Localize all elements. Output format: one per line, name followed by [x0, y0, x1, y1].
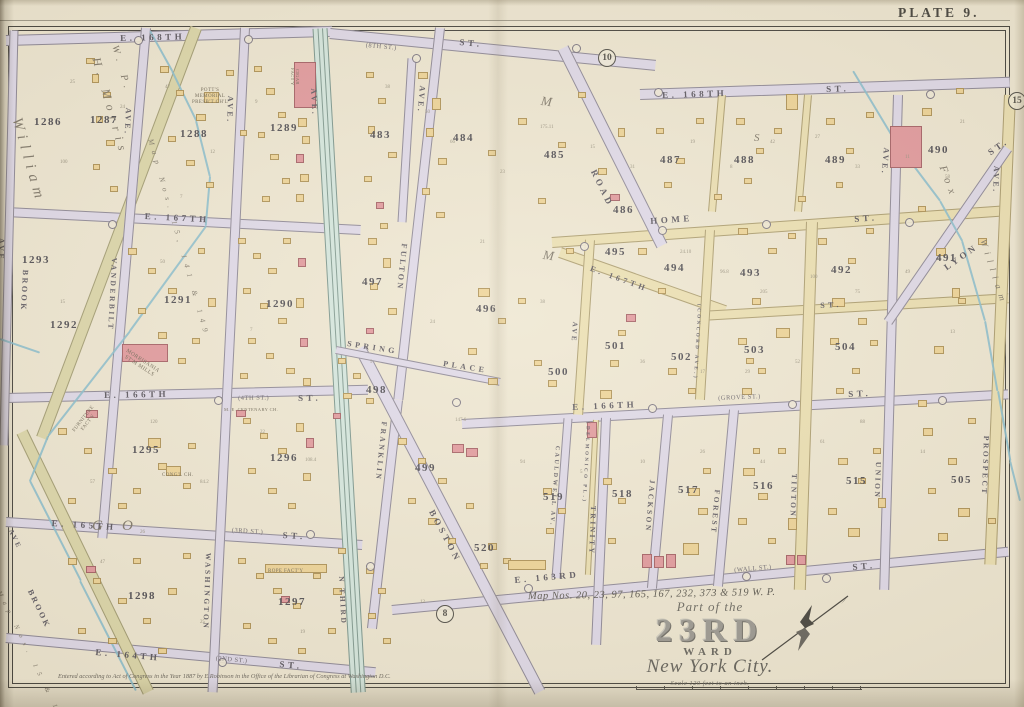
frame-building [610, 360, 619, 367]
frame-building [388, 152, 397, 158]
corner-marker [658, 226, 667, 235]
frame-building [178, 358, 186, 364]
brick-building [452, 444, 464, 453]
lot-number: 57 [90, 480, 95, 485]
lot-number: 42 [770, 140, 775, 145]
block-number: 1287 [90, 114, 118, 126]
street-label: ST. [854, 212, 878, 224]
frame-building [866, 228, 874, 234]
lot-number: 38 [540, 300, 545, 305]
avenue-label: PROSPECT [979, 436, 990, 496]
lot-number: 15 [60, 300, 65, 305]
frame-building [683, 543, 699, 555]
block-number: 495 [605, 246, 626, 258]
stream-segment [1009, 461, 1021, 501]
frame-building [436, 212, 445, 218]
frame-building [248, 338, 256, 344]
frame-building [578, 92, 586, 98]
frame-building [240, 130, 247, 136]
frame-building [368, 238, 377, 245]
lot-number: 108.4 [305, 458, 316, 463]
estate-label: O [122, 518, 139, 535]
lot-number: 36 [640, 360, 645, 365]
frame-building [638, 248, 647, 255]
brick-building [300, 338, 308, 347]
brick-building [626, 314, 636, 322]
frame-building [68, 498, 76, 504]
frame-building [378, 588, 386, 594]
lot-number: 52 [795, 360, 800, 365]
frame-building [778, 448, 786, 454]
block-number: 489 [825, 154, 846, 166]
avenue-label: UNION [872, 462, 882, 500]
lot-number: 47 [165, 85, 170, 90]
block-number: 498 [366, 384, 387, 396]
frame-building [948, 458, 957, 465]
corner-marker [108, 220, 117, 229]
frame-building [183, 483, 191, 489]
frame-building [243, 623, 251, 629]
street-label: ST. [852, 560, 876, 572]
brick-building [642, 554, 652, 568]
frame-building [918, 206, 926, 212]
frame-building [286, 368, 295, 374]
frame-building [703, 468, 711, 474]
frame-building [300, 174, 309, 182]
frame-building [273, 588, 282, 594]
frame-building [383, 638, 391, 644]
block-number: 516 [753, 480, 774, 492]
block-number: 1295 [132, 444, 160, 456]
corner-marker [572, 44, 581, 53]
frame-building [254, 66, 262, 72]
frame-building [480, 563, 488, 569]
frame-building [836, 182, 843, 188]
lot-number: 29 [745, 370, 750, 375]
street-label: ST. [820, 300, 842, 310]
brick-building [86, 566, 96, 573]
frame-building [378, 98, 386, 104]
street-label: E. 168TH [662, 88, 727, 100]
frame-building [688, 388, 696, 394]
lot-number: 22 [260, 430, 265, 435]
frame-building [256, 573, 264, 579]
frame-building [110, 186, 118, 192]
lot-number: 96.8 [720, 270, 729, 275]
lot-number: 147.6 [455, 418, 466, 423]
avenue-label: AVE. [309, 88, 320, 116]
frame-building [774, 128, 782, 134]
block-number: 496 [476, 303, 497, 315]
frame-building [922, 108, 932, 116]
lot-number: 13 [950, 330, 955, 335]
frame-building [518, 298, 526, 304]
lot-number: 19 [300, 630, 305, 635]
lot-number: 50 [160, 260, 165, 265]
lot-number: 9 [255, 100, 258, 105]
frame-building [768, 248, 777, 254]
avenue-label: AVE. [991, 166, 1001, 194]
lot-number: 24 [430, 320, 435, 325]
frame-building [498, 318, 506, 324]
avenue-label: AVE [569, 321, 579, 343]
frame-building [988, 518, 996, 524]
frame-building [143, 618, 151, 624]
brick-building [366, 328, 374, 334]
frame-building [380, 223, 388, 229]
frame-building [558, 142, 566, 148]
block-number: 499 [415, 462, 436, 474]
frame-building [658, 288, 666, 294]
paper-top-edge [0, 20, 1010, 21]
lot-number: 44 [760, 460, 765, 465]
street-label: ST. [279, 659, 303, 671]
adjoining-plate-ref: 15 [1008, 92, 1024, 110]
corner-marker [214, 396, 223, 405]
block-number: 486 [613, 204, 634, 216]
lot-number: 7 [180, 195, 183, 200]
frame-building [566, 248, 574, 254]
frame-building [798, 196, 806, 202]
estate-label: M [540, 94, 559, 111]
block-number: 503 [744, 344, 765, 356]
frame-building [618, 128, 625, 137]
avenue-label: WASHINGTON [201, 553, 212, 631]
frame-building [408, 498, 416, 504]
frame-building [206, 182, 214, 188]
lot-number: 23 [500, 170, 505, 175]
corner-marker [926, 90, 935, 99]
frame-building [786, 94, 798, 110]
frame-building [846, 148, 854, 154]
block-number: 515 [846, 475, 867, 487]
lot-number: 24.10 [680, 250, 691, 255]
landmark-label: CONG'L CH. [162, 473, 193, 479]
frame-building [108, 468, 117, 474]
frame-building [138, 308, 146, 314]
lot-number: 100 [810, 275, 818, 280]
frame-building [548, 380, 557, 387]
scale-bar [636, 686, 862, 690]
block-number: 518 [612, 488, 633, 500]
frame-building [366, 72, 374, 78]
frame-building [282, 178, 290, 184]
brick-building [306, 438, 314, 448]
frame-building [534, 360, 542, 366]
street-label: E. 166TH [104, 389, 169, 400]
frame-building [298, 118, 307, 127]
frame-building [698, 508, 708, 515]
frame-building [253, 253, 261, 259]
frame-building [353, 373, 361, 379]
landmark-label: ROPE FACT'Y [268, 569, 303, 575]
frame-building [696, 118, 704, 124]
frame-building [743, 468, 755, 476]
block-number: 520 [474, 542, 495, 554]
frame-building [656, 128, 664, 134]
frame-building [288, 503, 296, 509]
frame-building [93, 578, 101, 584]
frame-building [148, 268, 156, 274]
frame-building [836, 388, 844, 394]
lot-number: 10 [640, 460, 645, 465]
landmark-label: M. E. CENTENARY CH. [224, 407, 278, 412]
frame-building [303, 378, 311, 386]
lot-number: 7 [250, 328, 253, 333]
frame-building [438, 158, 447, 165]
brick-building [890, 126, 922, 168]
brick-building [296, 154, 304, 163]
lot-number: 100 [60, 160, 68, 165]
frame-building [852, 368, 860, 374]
frame-building [866, 112, 874, 118]
frame-building [364, 176, 372, 182]
block-number: 494 [664, 262, 685, 274]
block-number: 488 [734, 154, 755, 166]
frame-building [278, 112, 286, 118]
block-number: 1286 [34, 116, 62, 128]
block-number: 492 [831, 264, 852, 276]
corner-marker [648, 404, 657, 413]
frame-building [788, 518, 797, 530]
frame-building [753, 448, 760, 454]
estate-label: G [92, 518, 109, 535]
frame-building [608, 538, 616, 544]
frame-building [133, 558, 141, 564]
brick-building [797, 555, 806, 565]
frame-building [183, 553, 191, 559]
brick-building [376, 202, 384, 209]
lot-number: 75 [855, 290, 860, 295]
frame-building [488, 150, 496, 156]
frame-building [58, 428, 67, 435]
frame-building [302, 136, 310, 144]
frame-building [278, 318, 287, 324]
street-label: E. 168TH [120, 31, 185, 43]
frame-building [873, 448, 881, 454]
lot-number: 175.11 [540, 125, 554, 130]
frame-building [133, 488, 141, 494]
frame-building [328, 628, 336, 634]
frame-building [208, 298, 216, 307]
brick-building [466, 448, 478, 457]
frame-building [198, 248, 205, 254]
atlas-plate: PLATE 9. E. 168TH(8TH ST.)ST.E. 168THST.… [0, 0, 1024, 707]
frame-building [303, 473, 311, 481]
frame-building [160, 66, 169, 73]
frame-building [546, 528, 554, 534]
lot-number: 12 [210, 150, 215, 155]
block-number: 1290 [266, 298, 294, 310]
frame-building [298, 648, 306, 654]
lot-number: 25 [70, 80, 75, 85]
lot-number: 19 [690, 140, 695, 145]
frame-building [383, 258, 391, 268]
frame-building [68, 558, 77, 565]
block-number: 493 [740, 267, 761, 279]
copyright-line: Entered according to Act of Congress in … [58, 673, 391, 680]
frame-building [283, 238, 291, 244]
frame-building [956, 88, 964, 94]
block-number: 517 [678, 484, 699, 496]
corner-marker [938, 396, 947, 405]
frame-building [262, 196, 270, 202]
frame-building [108, 638, 117, 644]
lot-number: 15 [590, 145, 595, 150]
lot-number: 94 [520, 460, 525, 465]
frame-building [426, 128, 434, 137]
frame-building [478, 288, 490, 297]
frame-building [118, 503, 127, 509]
frame-building [226, 70, 234, 76]
frame-building [818, 238, 827, 245]
lot-number: 88 [860, 420, 865, 425]
block-number: 484 [453, 132, 474, 144]
frame-building [438, 478, 447, 484]
avenue-label: TRINITY [587, 506, 597, 556]
frame-building [838, 458, 848, 465]
frame-building [248, 468, 256, 474]
lot-number: 26 [700, 450, 705, 455]
frame-building [738, 518, 747, 525]
frame-building [84, 448, 92, 454]
frame-building [78, 628, 86, 634]
frame-building [714, 194, 722, 200]
estate-label: S [754, 132, 766, 145]
block-number: 500 [548, 366, 569, 378]
lot-number: 50 [425, 110, 430, 115]
frame-building [508, 560, 546, 570]
block-number: 483 [370, 129, 391, 141]
frame-building [268, 268, 277, 274]
frame-building [258, 132, 265, 138]
block-number: 485 [544, 149, 565, 161]
frame-building [744, 178, 752, 184]
corner-marker [762, 220, 771, 229]
frame-building [176, 90, 184, 96]
frame-building [758, 493, 768, 500]
block-number: 497 [362, 276, 383, 288]
frame-building [618, 330, 626, 336]
brick-building [786, 555, 795, 565]
lot-number: 8 [730, 165, 733, 170]
frame-building [188, 443, 196, 449]
block-number: 1298 [128, 590, 156, 602]
block-number: 505 [951, 474, 972, 486]
avenue-label: TINTON [788, 474, 798, 519]
avenue-label: N THIRD [336, 576, 347, 626]
corner-marker [306, 530, 315, 539]
frame-building [958, 508, 970, 517]
street-label: ST. [826, 83, 849, 94]
frame-building [468, 348, 477, 355]
lot-number: 21 [480, 240, 485, 245]
lot-number: 120 [150, 420, 158, 425]
frame-building [270, 154, 279, 160]
frame-building [196, 114, 206, 121]
estate-label: M [542, 248, 561, 265]
frame-building [296, 423, 304, 432]
street-label: ST. [298, 393, 321, 404]
corner-marker [822, 574, 831, 583]
frame-building [243, 288, 251, 294]
frame-building [118, 598, 127, 604]
adjoining-plate-ref: 10 [598, 49, 616, 67]
lot-number: 17 [700, 370, 705, 375]
lot-number: 9 [370, 360, 373, 365]
frame-building [826, 118, 835, 125]
street-label: (4TH ST.) [238, 394, 269, 402]
frame-building [746, 358, 754, 364]
frame-building [756, 148, 764, 154]
frame-building [668, 368, 677, 375]
lot-number: 27 [815, 135, 820, 140]
frame-building [128, 248, 137, 255]
compass-rose-icon [748, 588, 858, 668]
frame-building [268, 488, 277, 494]
frame-building [664, 182, 672, 188]
corner-marker [366, 562, 375, 571]
frame-building [958, 298, 966, 304]
frame-building [776, 328, 790, 338]
frame-building [296, 298, 304, 308]
lot-number: 26 [140, 530, 145, 535]
frame-building [603, 478, 612, 485]
frame-building [768, 538, 776, 544]
frame-building [848, 528, 860, 537]
frame-building [928, 488, 936, 494]
street-label: ST. [459, 37, 483, 49]
frame-building [968, 418, 976, 424]
frame-building [296, 194, 304, 202]
frame-building [238, 238, 246, 244]
corner-marker [452, 398, 461, 407]
corner-marker [244, 35, 253, 44]
block-number: 504 [835, 341, 856, 353]
street-label: ST. [282, 530, 306, 542]
frame-building [488, 378, 498, 385]
frame-building [186, 160, 195, 166]
block-number: 1292 [50, 319, 78, 331]
frame-building [168, 136, 176, 142]
frame-building [418, 72, 428, 79]
frame-building [934, 346, 944, 354]
frame-building [158, 332, 167, 339]
frame-building [858, 318, 867, 325]
frame-building [338, 548, 346, 554]
corner-marker [905, 218, 914, 227]
corner-marker [580, 242, 589, 251]
frame-building [738, 228, 748, 235]
frame-building [952, 288, 960, 298]
frame-building [240, 373, 248, 379]
corner-marker [788, 400, 797, 409]
block-number: 487 [660, 154, 681, 166]
frame-building [758, 368, 766, 374]
block-number: 1297 [278, 596, 306, 608]
block-number: 1288 [180, 128, 208, 140]
block-number: 502 [671, 351, 692, 363]
frame-building [192, 338, 200, 344]
frame-building [878, 498, 886, 508]
frame-building [923, 428, 933, 436]
lot-number: 12 [420, 600, 425, 605]
frame-building [343, 393, 352, 399]
frame-building [466, 503, 474, 509]
block-number: 491 [936, 252, 957, 264]
lot-number: 47 [100, 560, 105, 565]
frame-building [918, 400, 927, 407]
